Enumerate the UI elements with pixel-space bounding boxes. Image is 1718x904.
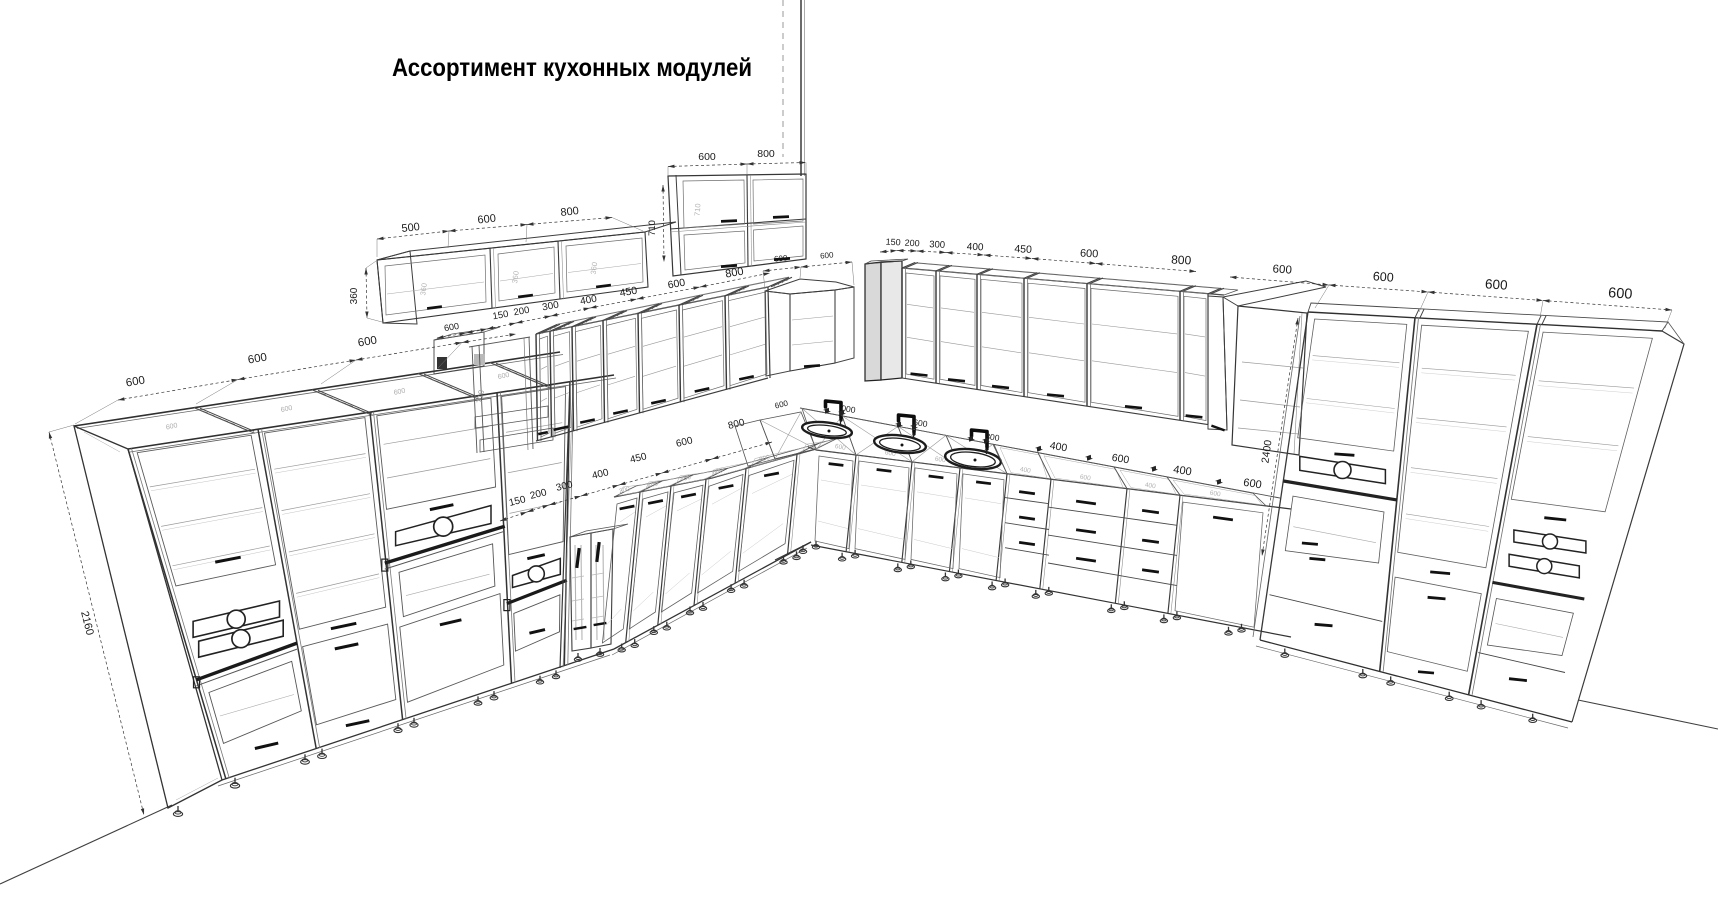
svg-text:600: 600 xyxy=(1485,276,1509,293)
svg-text:800: 800 xyxy=(1171,252,1192,267)
svg-text:600: 600 xyxy=(1372,269,1394,284)
svg-text:150: 150 xyxy=(885,237,901,248)
svg-text:200: 200 xyxy=(904,238,920,249)
svg-text:Ассортимент кухонных модулей: Ассортимент кухонных модулей xyxy=(392,54,752,82)
svg-text:450: 450 xyxy=(1014,243,1032,256)
svg-text:710: 710 xyxy=(692,203,702,216)
svg-text:300: 300 xyxy=(929,239,945,251)
svg-text:600: 600 xyxy=(1608,285,1633,303)
svg-text:600: 600 xyxy=(698,151,716,163)
svg-text:600: 600 xyxy=(477,213,497,227)
svg-text:360: 360 xyxy=(349,287,360,304)
svg-text:710: 710 xyxy=(647,220,658,236)
svg-text:800: 800 xyxy=(560,205,580,219)
svg-text:360: 360 xyxy=(510,270,520,284)
svg-text:600: 600 xyxy=(1080,248,1099,261)
svg-text:600: 600 xyxy=(820,250,835,260)
svg-text:360: 360 xyxy=(418,282,428,296)
svg-text:600: 600 xyxy=(1272,263,1292,276)
svg-text:800: 800 xyxy=(757,148,775,160)
svg-text:400: 400 xyxy=(967,242,985,254)
svg-text:500: 500 xyxy=(401,221,421,235)
svg-text:360: 360 xyxy=(589,261,599,275)
